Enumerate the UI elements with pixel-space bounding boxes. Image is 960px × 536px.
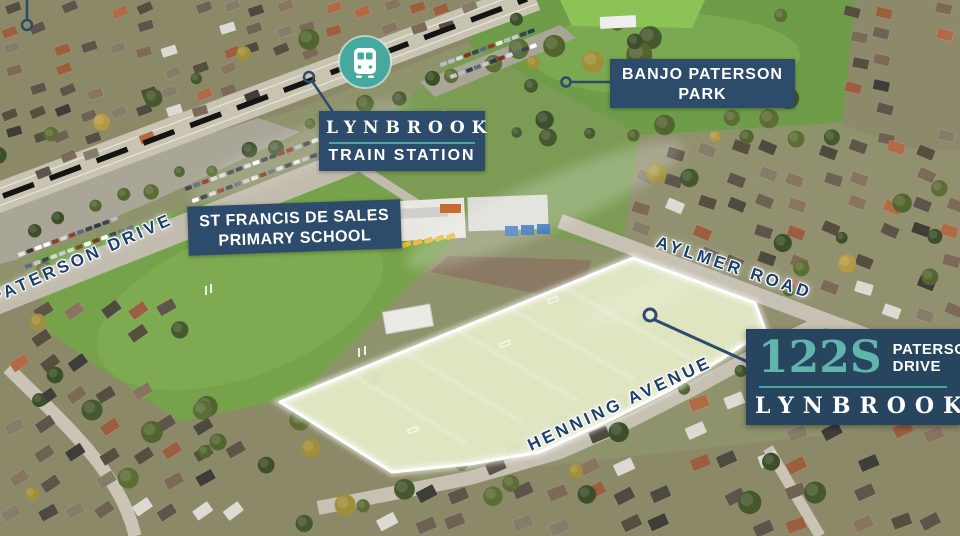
aerial-map: LYNBROOK TRAIN STATION BANJO PATERSON PA…	[0, 0, 960, 536]
street-name-line1: PATERSON	[893, 341, 960, 358]
property-badge: 122S PATERSON DRIVE LYNBROOK	[746, 329, 960, 425]
park-label: BANJO PATERSON PARK	[610, 59, 795, 108]
aerial-photo	[0, 0, 960, 536]
train-station-label: LYNBROOK TRAIN STATION	[319, 111, 485, 171]
site-marker	[644, 309, 656, 321]
park-name-line1: BANJO PATERSON	[610, 65, 795, 85]
train-icon	[338, 35, 392, 89]
school-label: ST FRANCIS DE SALES PRIMARY SCHOOL	[187, 199, 402, 255]
badge-divider	[759, 386, 947, 388]
suburb-name: LYNBROOK	[746, 393, 960, 419]
train-station-subtitle: TRAIN STATION	[319, 147, 485, 165]
street-name: PATERSON DRIVE	[893, 341, 960, 376]
street-name-line2: DRIVE	[893, 358, 960, 375]
train-station-divider	[329, 142, 475, 144]
lot-number: 122S	[758, 338, 882, 378]
property-badge-top: 122S PATERSON DRIVE	[746, 334, 960, 382]
train-station-name: LYNBROOK	[319, 119, 485, 138]
park-name-line2: PARK	[610, 85, 795, 105]
